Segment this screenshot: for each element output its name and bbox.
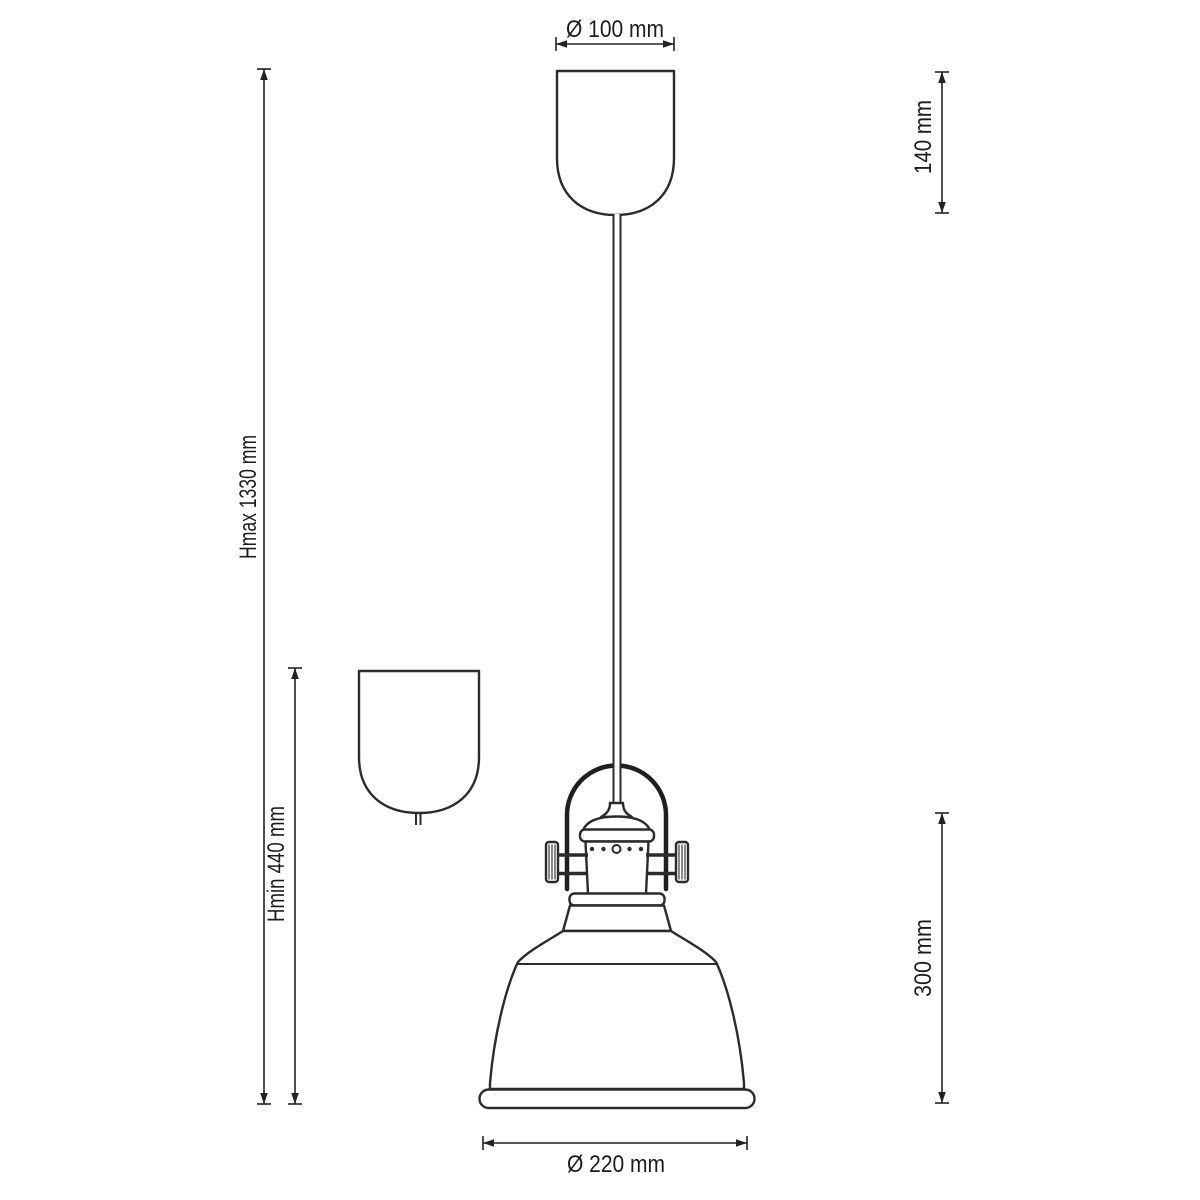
technical-drawing-canvas: Ø 100 mm 140 mm Hmax 1330 mm Hmin 440 mm…	[0, 0, 1200, 1200]
arrowhead-up	[938, 813, 946, 824]
socket-dome-cap	[583, 817, 650, 831]
cord-grip	[601, 803, 632, 817]
dimension-height-min: Hmin 440 mm	[263, 668, 302, 1104]
dimension-label-height-min: Hmin 440 mm	[263, 806, 290, 922]
vent-dot	[590, 847, 594, 851]
vent-ring	[613, 845, 621, 853]
vent-dot	[627, 847, 631, 851]
shade-rim	[480, 1090, 755, 1109]
arrowhead-down	[938, 1092, 946, 1103]
arrowhead-right	[736, 1139, 747, 1147]
dimension-label-shade-diameter: Ø 220 mm	[567, 1151, 665, 1178]
vent-dot	[601, 847, 605, 851]
arrowhead-right	[663, 40, 674, 48]
dimension-label-canopy-height: 140 mm	[910, 100, 937, 174]
dimension-label-height-max: Hmax 1330 mm	[235, 435, 262, 559]
arrowhead-down	[938, 202, 946, 213]
arrowhead-down	[260, 1093, 268, 1104]
main-view	[480, 71, 755, 1108]
ceiling-canopy-outline	[557, 71, 674, 215]
socket-cap-band	[580, 830, 654, 842]
thumbscrew-right	[676, 842, 688, 882]
suspension-cord	[614, 214, 621, 806]
vent-dot	[639, 847, 643, 851]
lamp-shade	[490, 931, 744, 1089]
detail-view-canopy	[359, 671, 479, 825]
dimension-shade-diameter: Ø 220 mm	[483, 1136, 747, 1178]
arrowhead-up	[260, 69, 268, 80]
socket-base-flange	[570, 894, 665, 906]
cord-core	[615, 214, 620, 806]
dimension-label-canopy-diameter: Ø 100 mm	[566, 16, 664, 43]
arrowhead-up	[291, 668, 299, 679]
arrowhead-down	[291, 1093, 299, 1104]
dimension-canopy-height: 140 mm	[910, 72, 949, 213]
arrowhead-left	[483, 1139, 494, 1147]
dimension-label-fixture-height: 300 mm	[910, 919, 937, 997]
arrowhead-up	[938, 72, 946, 83]
dimension-canopy-diameter: Ø 100 mm	[556, 16, 674, 51]
detail-canopy-outline	[359, 671, 479, 813]
shade-neck	[563, 906, 671, 932]
dimension-height-max: Hmax 1330 mm	[235, 69, 271, 1104]
thumbscrew-left	[546, 842, 558, 882]
pendant-lamp-diagram: Ø 100 mm 140 mm Hmax 1330 mm Hmin 440 mm…	[0, 0, 1200, 1200]
dimension-fixture-height: 300 mm	[910, 813, 949, 1103]
